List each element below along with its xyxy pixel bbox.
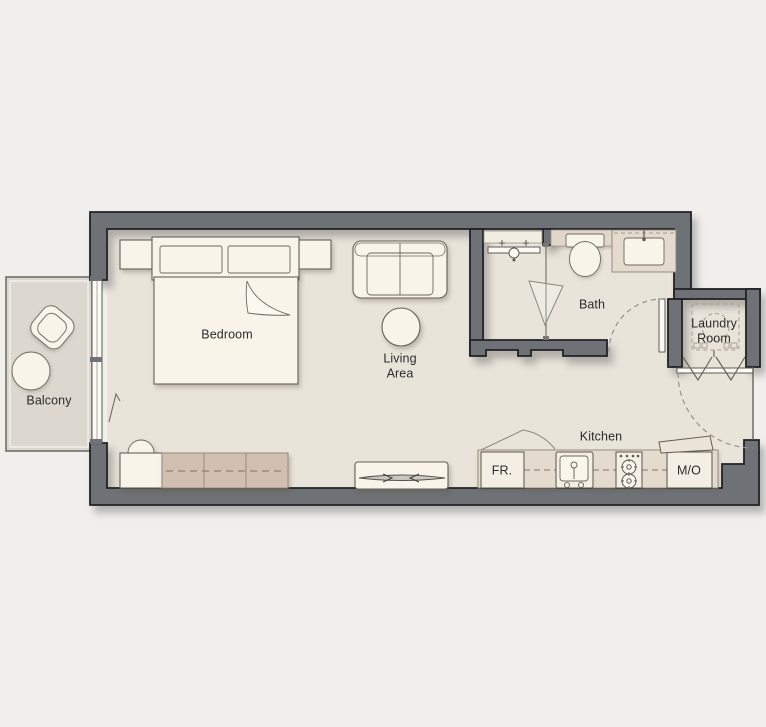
background-mask xyxy=(692,196,766,290)
shower-head xyxy=(509,248,519,258)
round-table-icon xyxy=(12,352,50,390)
microwave-oven-label: M/O xyxy=(677,464,701,479)
bath-door-leaf xyxy=(659,299,665,352)
living-area-label: Living Area xyxy=(376,351,424,381)
pillow-icon xyxy=(160,246,222,273)
laundry-left-wall xyxy=(668,299,682,367)
background-mask xyxy=(754,365,766,442)
vanity-faucet xyxy=(642,238,645,241)
kitchen-label: Kitchen xyxy=(580,430,622,445)
nightstand-icon xyxy=(120,240,152,269)
sofa-icon xyxy=(353,241,447,298)
laundry-right-wall xyxy=(746,289,760,367)
bedroom-label: Bedroom xyxy=(201,328,252,343)
floorplan-canvas: Bedroom Living Area Balcony Bath Laundry… xyxy=(0,0,766,727)
kitchen-sink-icon xyxy=(556,452,593,488)
balcony-area xyxy=(6,277,92,451)
nightstand-icon xyxy=(299,240,331,269)
desk-icon xyxy=(120,453,162,488)
vanity-sink-icon xyxy=(612,230,676,272)
tv-console-icon xyxy=(355,462,448,489)
laundry-room-label: Laundry Room xyxy=(681,316,747,346)
window-tick xyxy=(90,439,102,444)
bath-label: Bath xyxy=(579,298,605,313)
pillow-icon xyxy=(228,246,290,273)
vanity-basin xyxy=(624,238,664,265)
coffee-table-icon xyxy=(382,308,420,346)
bath-left-wall xyxy=(470,229,483,355)
entry-door-leaf xyxy=(677,368,753,373)
balcony-label: Balcony xyxy=(26,394,71,409)
window-tick xyxy=(90,357,102,362)
shower-shelf xyxy=(484,231,542,243)
cooktop-icon xyxy=(616,452,642,489)
window-tick xyxy=(90,276,102,281)
wardrobe-icon xyxy=(162,453,288,488)
fridge-label: FR. xyxy=(492,464,512,479)
